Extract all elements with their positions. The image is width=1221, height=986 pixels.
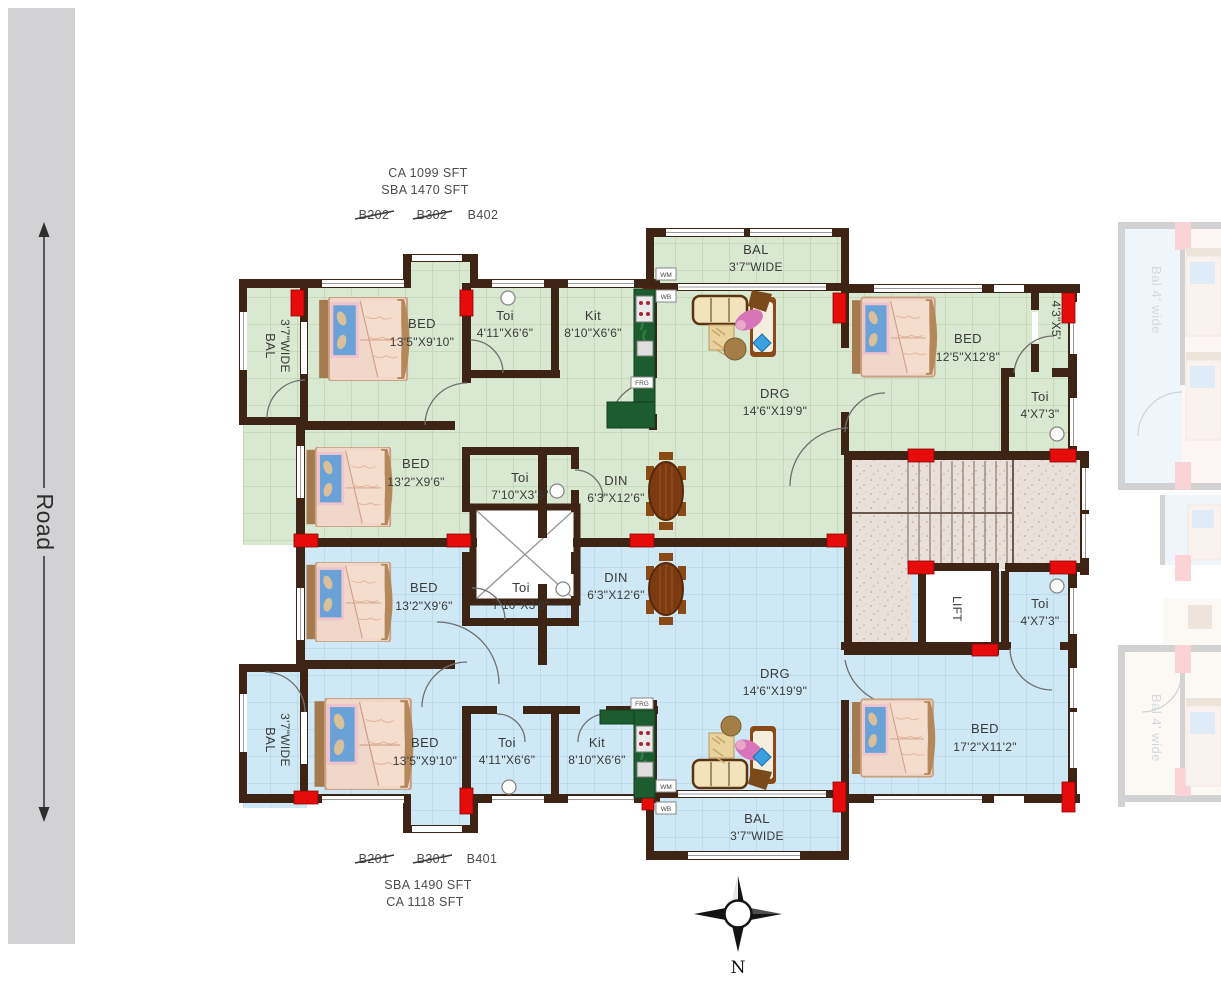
blue-id-active: B401 xyxy=(467,852,498,866)
room-label: Kit xyxy=(589,735,605,750)
room-label: DRG xyxy=(760,666,790,681)
bed-icon xyxy=(315,698,414,790)
room-label: BED xyxy=(402,456,430,471)
room-dim: 4'3"X5' xyxy=(1049,301,1063,340)
room-label: Toi xyxy=(496,308,514,323)
green-area-line2: SBA 1470 SFT xyxy=(381,183,468,197)
room-dim: 3'7"WIDE xyxy=(729,260,783,274)
room-dim: 13'2"X9'6" xyxy=(387,475,444,489)
room-label: Toi xyxy=(1031,596,1049,611)
room-dim: 12'5"X12'8" xyxy=(936,350,1000,364)
bed-icon xyxy=(306,562,392,642)
north-label: N xyxy=(731,958,746,978)
room-dim: 17'2"X11'2" xyxy=(953,740,1017,754)
adjacent-faded-plans: Bal 4' wide Bal 4' wide xyxy=(1118,222,1221,807)
room-dim: 13'5"X9'10" xyxy=(393,754,457,768)
room-dim: 13'5"X9'10" xyxy=(390,335,454,349)
room-label: BED xyxy=(410,580,438,595)
room-label: BAL xyxy=(743,242,769,257)
wm-label: WM xyxy=(660,784,672,791)
room-label: Toi xyxy=(1031,389,1049,404)
room-dim: 8'10"X6'6" xyxy=(564,326,621,340)
room-dim: 8'10"X6'6" xyxy=(568,753,625,767)
room-dim: 4'X7'3" xyxy=(1021,614,1060,628)
room-label: BAL xyxy=(263,333,278,359)
room-dim: 7'10"X3'8" xyxy=(491,488,548,502)
side-bal-label: Bal 4' wide xyxy=(1149,266,1164,334)
room-label: BAL xyxy=(744,811,770,826)
room-label: DIN xyxy=(604,570,628,585)
room-dim: 6'3"X12'6" xyxy=(587,588,644,602)
room-label: Kit xyxy=(585,308,601,323)
wb-label: WB xyxy=(661,294,671,301)
room-label: BED xyxy=(408,316,436,331)
room-label: Toi xyxy=(498,735,516,750)
side-bal-label: Bal 4' wide xyxy=(1149,694,1164,762)
fridge-label: FRG xyxy=(635,701,649,708)
room-label: DRG xyxy=(760,386,790,401)
fridge-label: FRG xyxy=(635,380,649,387)
unit-green-notes: CA 1099 SFT SBA 1470 SFT B202 B302 B402 xyxy=(355,166,498,222)
green-id-active: B402 xyxy=(468,208,499,222)
room-dim: 7'10"X3'8" xyxy=(492,598,549,612)
road-strip: Road xyxy=(8,8,75,944)
road-label: Road xyxy=(32,494,58,551)
room-dim: 3'7"WIDE xyxy=(278,713,292,767)
room-dim: 4'11"X6'6" xyxy=(479,753,536,767)
compass: N xyxy=(694,876,782,978)
room-dim: 13'2"X9'6" xyxy=(395,599,452,613)
room-label: Toi xyxy=(512,580,530,595)
room-dim: 4'11"X6'6" xyxy=(477,326,534,340)
floor-plan-drawing: Road CA 1099 SFT SBA 1470 SFT B202 B302 … xyxy=(0,0,1221,986)
room-label: Toi xyxy=(511,470,529,485)
bed-icon xyxy=(852,699,935,776)
room-label: BAL xyxy=(263,727,278,753)
bed-icon xyxy=(852,297,937,376)
floor-plan-page: Road CA 1099 SFT SBA 1470 SFT B202 B302 … xyxy=(0,0,1221,986)
bed-icon xyxy=(306,447,392,527)
blue-area-line2: CA 1118 SFT xyxy=(386,895,464,909)
room-dim: 14'6"X19'9" xyxy=(743,404,807,418)
room-dim: 3'7"WIDE xyxy=(730,829,784,843)
wm-label: WM xyxy=(660,272,672,279)
lift-label: LIFT xyxy=(950,596,964,622)
wb-label: WB xyxy=(661,806,671,813)
green-area-line1: CA 1099 SFT xyxy=(388,166,467,180)
room-label: DIN xyxy=(604,473,628,488)
room-dim: 14'6"X19'9" xyxy=(743,684,807,698)
blue-area-line1: SBA 1490 SFT xyxy=(384,878,471,892)
room-label: BED xyxy=(954,331,982,346)
room-label: BED xyxy=(411,735,439,750)
room-dim: 6'3"X12'6" xyxy=(587,491,644,505)
unit-blue-notes: B201 B301 B401 SBA 1490 SFT CA 1118 SFT xyxy=(355,852,497,909)
room-dim: 4'X7'3" xyxy=(1021,407,1060,421)
room-dim: 3'7"WIDE xyxy=(278,319,292,373)
room-label: BED xyxy=(971,721,999,736)
